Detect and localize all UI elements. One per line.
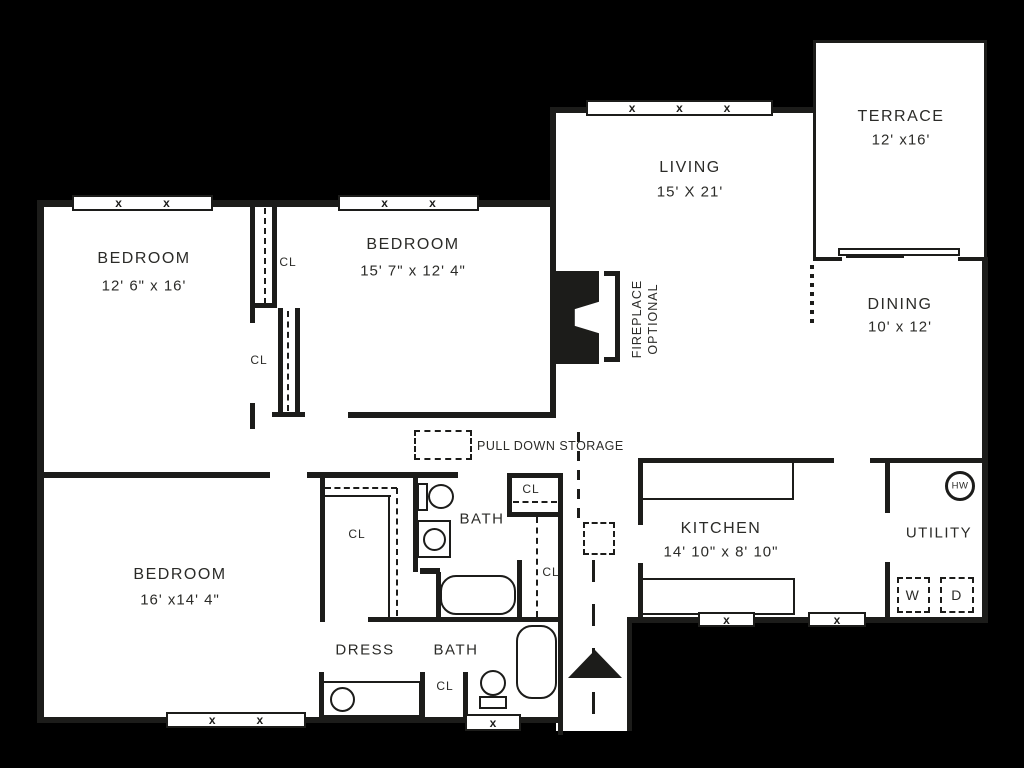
- window-x-mark: x: [490, 717, 497, 729]
- room-label-bedroom3: BEDROOM: [133, 566, 226, 584]
- wall-west-upper: [37, 200, 44, 477]
- closet1-rod: [264, 208, 266, 304]
- wall-living-west: [550, 107, 556, 418]
- floor-terrace: [814, 42, 986, 258]
- dining-dotted-wall: [810, 265, 814, 328]
- wall-terrace-bottom-left: [813, 257, 842, 261]
- fireplace-bracket-bottom: [604, 357, 620, 362]
- room-label-terrace: TERRACE: [858, 108, 945, 126]
- hall-attic-access-box: [583, 522, 615, 555]
- wall-kitchen-east: [982, 458, 988, 623]
- wall-utility-west-a: [885, 458, 890, 513]
- room-dims-kitchen: 14' 10" x 8' 10": [664, 544, 779, 561]
- toilet-tank-lower: [479, 696, 507, 709]
- bathtub-lower: [516, 625, 557, 699]
- window-x-mark: x: [429, 197, 436, 209]
- window-bedroom3: x x: [166, 712, 306, 728]
- floor-dining: [813, 257, 986, 460]
- closet-label-1: CL: [279, 255, 296, 269]
- hot-water-label: HW: [952, 481, 969, 492]
- entry-arrow: [568, 650, 622, 678]
- closet2-rod: [287, 311, 289, 411]
- wall-corridor-east: [627, 617, 632, 731]
- window-kitchen-1: x: [698, 612, 755, 627]
- window-x-mark: x: [381, 197, 388, 209]
- wall-closet2-west: [278, 308, 283, 417]
- room-label-utility: UTILITY: [906, 525, 972, 542]
- wall-closet1-east: [272, 203, 277, 307]
- room-label-dining: DINING: [868, 296, 933, 314]
- room-label-bath-lower: BATH: [434, 642, 479, 659]
- wall-closet2-bottom: [272, 412, 305, 417]
- bathtub-upper: [440, 575, 516, 615]
- wall-corridor-west: [558, 473, 563, 735]
- window-x-mark: x: [723, 614, 730, 626]
- entry-path-dash-lower: [592, 560, 595, 728]
- closet-label-linen: CL: [542, 565, 559, 579]
- fireplace-optional-label: FIREPLACE OPTIONAL: [628, 272, 662, 366]
- hallcloset-shelf-dash: [513, 501, 557, 503]
- wall-bedroom3-top-b: [307, 472, 458, 478]
- sliding-door-leaf-outer: [838, 248, 960, 256]
- sink-basin-upper: [423, 528, 446, 551]
- window-kitchen-2: x: [808, 612, 866, 627]
- window-x-mark: x: [629, 102, 636, 114]
- wall-terrace-top: [813, 40, 987, 43]
- linen-closet-rod: [536, 517, 538, 617]
- kitchen-counter-lower: [641, 578, 795, 615]
- floor-plan: FIREPLACE OPTIONAL x x x x x x x x x x: [0, 0, 1024, 768]
- walkin-rod-horizontal: [325, 487, 397, 489]
- room-label-living: LIVING: [659, 159, 720, 177]
- wall-walkin-west: [320, 477, 325, 622]
- window-x-mark: x: [209, 714, 216, 726]
- toilet-bowl-lower: [480, 670, 506, 696]
- wall-terrace-west: [813, 40, 816, 259]
- dryer-label: D: [951, 587, 963, 603]
- wall-west-lower: [37, 472, 44, 722]
- closet-label-2: CL: [250, 353, 267, 367]
- wall-closet2-east: [295, 308, 300, 417]
- toilet-bowl-upper: [428, 484, 454, 509]
- closet-label-hall: CL: [522, 482, 539, 496]
- vanity-basin: [330, 687, 355, 712]
- window-bedroom2: x x: [338, 195, 479, 211]
- room-label-bath-upper: BATH: [460, 511, 505, 528]
- room-label-bedroom2: BEDROOM: [366, 236, 459, 254]
- room-label-dress: DRESS: [335, 642, 394, 659]
- window-x-mark: x: [676, 102, 683, 114]
- wall-kitchen-south: [627, 617, 987, 623]
- wall-hallcloset-west: [507, 473, 512, 517]
- closet-label-bath-lower: CL: [436, 679, 453, 693]
- closet-label-walkin: CL: [348, 527, 365, 541]
- wall-utility-west-b: [885, 562, 890, 619]
- wall-linen-west: [517, 560, 522, 622]
- pull-down-storage-label: PULL DOWN STORAGE: [477, 439, 624, 453]
- room-label-bedroom1: BEDROOM: [97, 250, 190, 268]
- wall-terrace-east: [984, 40, 987, 260]
- fireplace-label-line2: OPTIONAL: [645, 272, 661, 366]
- walkin-rod-vertical: [396, 488, 398, 616]
- window-x-mark: x: [163, 197, 170, 209]
- fireplace-bracket-side: [615, 271, 620, 362]
- room-dims-living: 15' X 21': [657, 184, 723, 201]
- window-x-mark: x: [724, 102, 731, 114]
- window-x-mark: x: [834, 614, 841, 626]
- window-living: x x x: [586, 100, 773, 116]
- window-bedroom1: x x: [72, 195, 213, 211]
- kitchen-counter-upper: [641, 461, 794, 500]
- walkin-shelf-h: [325, 495, 391, 497]
- window-bath-lower: x: [465, 714, 521, 731]
- wall-dining-east: [982, 257, 988, 463]
- pull-down-storage-box: [414, 430, 472, 460]
- wall-dresscloset-east: [463, 672, 468, 717]
- toilet-tank-upper: [417, 483, 428, 511]
- wall-bedroom2-south: [348, 412, 555, 418]
- room-dims-bedroom1: 12' 6" x 16': [102, 278, 187, 295]
- window-x-mark: x: [256, 714, 263, 726]
- room-label-kitchen: KITCHEN: [681, 520, 762, 538]
- wall-bedroom3-top-a: [37, 472, 270, 478]
- wall-bedroom1-east-lower: [250, 403, 255, 429]
- wall-hallcloset-bottom: [507, 512, 558, 517]
- room-dims-terrace: 12' x16': [872, 132, 931, 149]
- room-dims-bedroom3: 16' x14' 4": [140, 592, 220, 609]
- walkin-shelf-v: [388, 495, 390, 617]
- room-dims-dining: 10' x 12': [868, 319, 932, 336]
- wall-bath-south: [368, 617, 563, 622]
- room-dims-bedroom2: 15' 7" x 12' 4": [360, 263, 466, 280]
- washer-label: W: [906, 587, 921, 603]
- wall-hallcloset-top: [507, 473, 563, 478]
- fireplace-label-line1: FIREPLACE: [629, 272, 645, 366]
- window-x-mark: x: [115, 197, 122, 209]
